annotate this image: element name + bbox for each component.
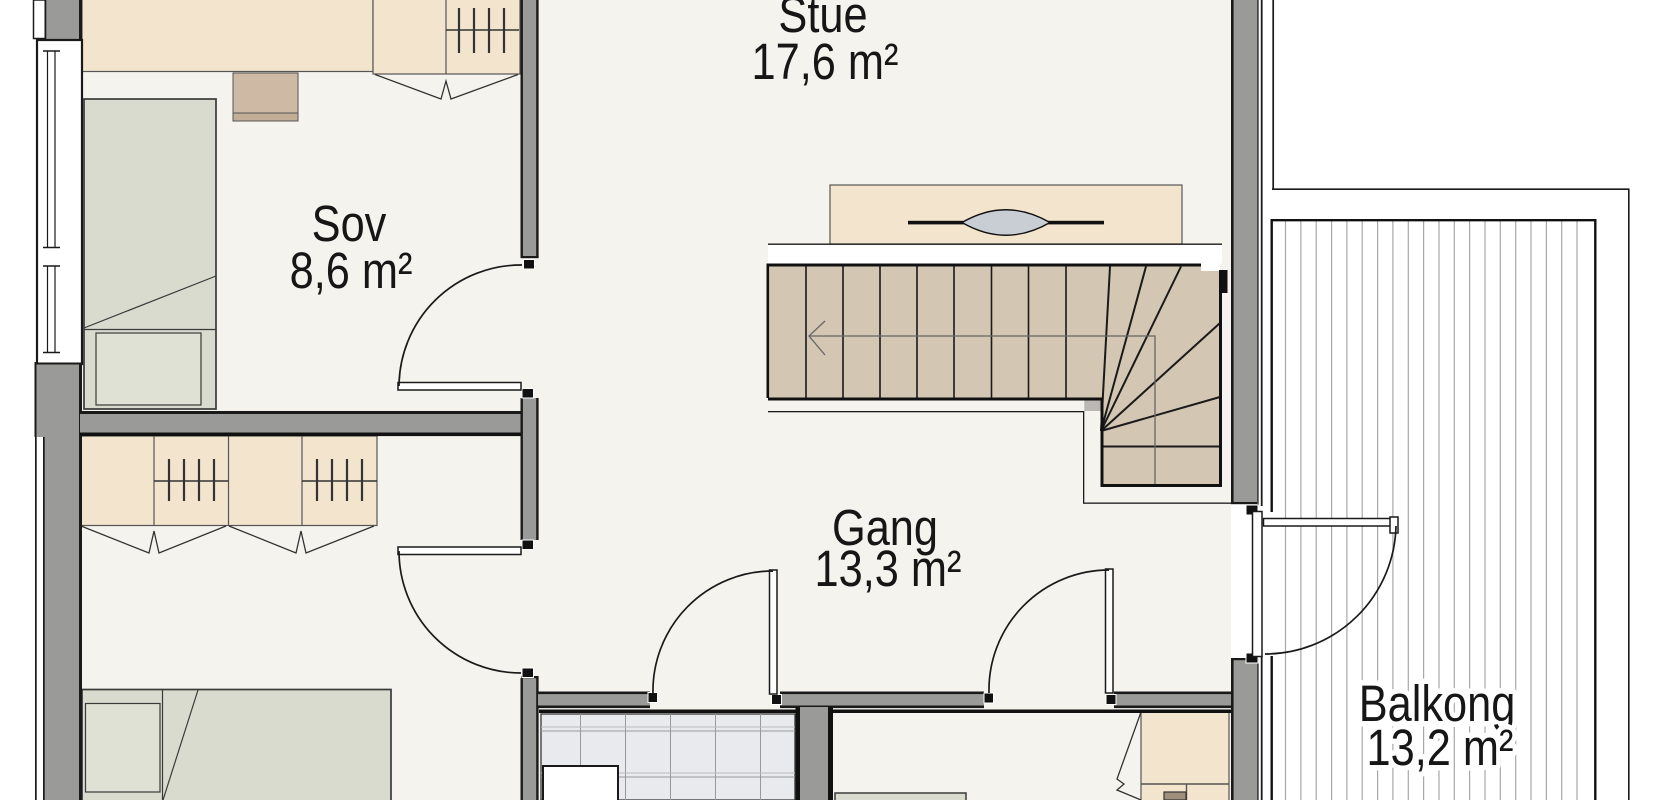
svg-text:8,6 m²: 8,6 m² — [290, 243, 413, 300]
svg-text:13,2 m²: 13,2 m² — [1367, 720, 1514, 777]
svg-text:17,6 m²: 17,6 m² — [752, 34, 899, 91]
svg-text:13,3 m²: 13,3 m² — [815, 541, 962, 598]
